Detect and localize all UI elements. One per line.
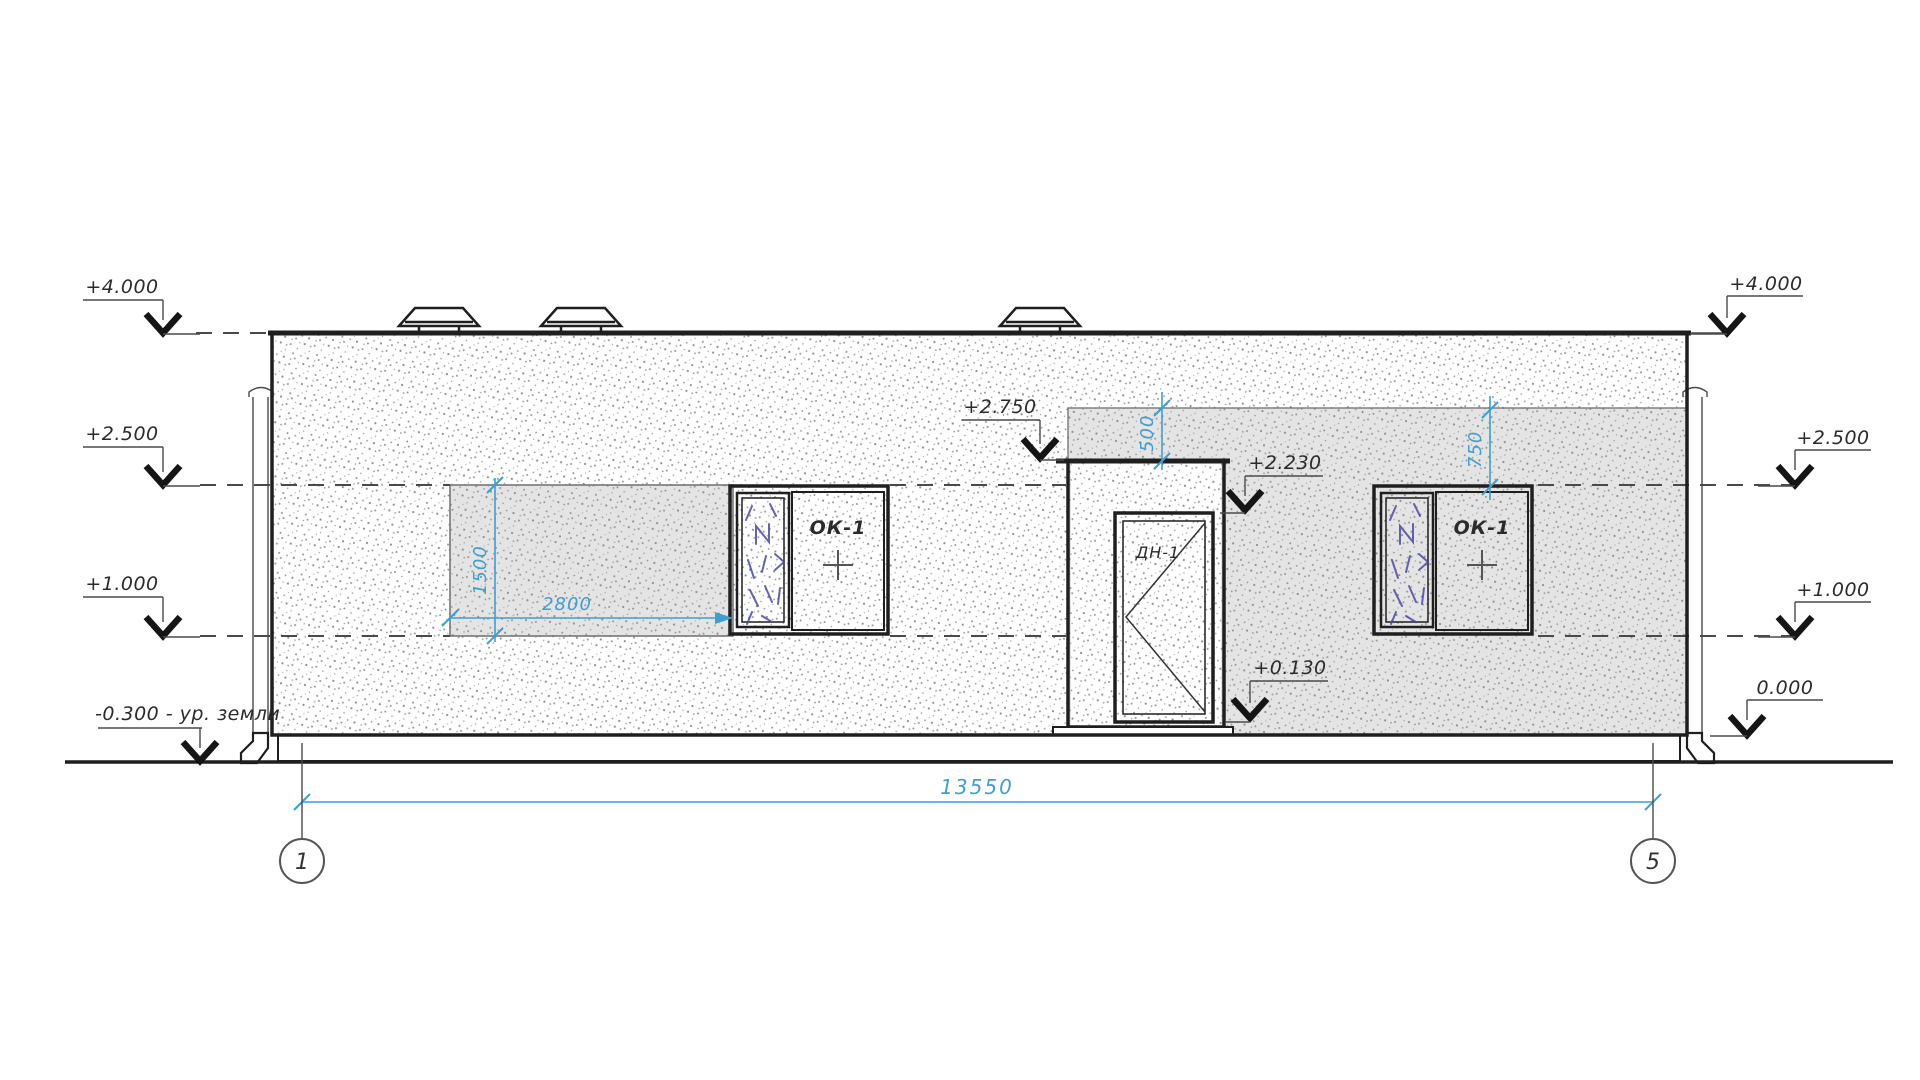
window-left-tag: ОК-1 — [810, 517, 867, 539]
level-label: +4.000 — [85, 276, 158, 298]
dim-label: 750 — [1465, 431, 1486, 468]
roof-vent-3 — [1000, 308, 1080, 333]
dim-label: 500 — [1137, 415, 1158, 452]
axis-5: 5 — [1631, 743, 1675, 883]
level-marker-right-1000: +1.000 — [1758, 579, 1871, 637]
level-label: +2.500 — [85, 423, 158, 445]
door-tag: ДН-1 — [1135, 543, 1180, 562]
window-right-tag: ОК-1 — [1454, 517, 1511, 539]
level-label: +1.000 — [85, 573, 158, 595]
level-marker-left-2500: +2.500 — [83, 423, 200, 486]
level-label: +2.230 — [1248, 452, 1321, 474]
level-label: -0.300 - ур. земли — [95, 703, 280, 725]
level-label: +4.000 — [1729, 273, 1802, 295]
roof-vent-1 — [399, 308, 479, 333]
axis-1: 1 — [280, 743, 324, 883]
level-label: +2.750 — [963, 396, 1036, 418]
level-label: 0.000 — [1757, 677, 1814, 699]
roof-vents — [399, 308, 1080, 333]
level-marker-left-1000: +1.000 — [83, 573, 200, 637]
roof-vent-2 — [541, 308, 621, 333]
level-marker-right-0000: 0.000 — [1710, 677, 1823, 736]
level-marker-right-4000: +4.000 — [1690, 273, 1803, 334]
entrance-porch — [1053, 461, 1233, 741]
dim-overall-13550: 13550 — [294, 775, 1661, 810]
level-label: +0.130 — [1253, 657, 1326, 679]
plinth — [278, 735, 1680, 761]
dim-label: 13550 — [940, 775, 1014, 799]
elevation-drawing: ДН-1 ОК-1 ОК-1 — [0, 0, 1920, 1080]
dim-label: 1500 — [470, 545, 491, 595]
axis-number: 5 — [1646, 850, 1660, 875]
level-marker-right-2500: +2.500 — [1758, 427, 1871, 486]
level-marker-left-4000: +4.000 — [83, 276, 200, 334]
dim-label: 2800 — [542, 594, 592, 615]
axis-number: 1 — [295, 850, 309, 875]
level-label: +1.000 — [1796, 579, 1869, 601]
level-label: +2.500 — [1796, 427, 1869, 449]
